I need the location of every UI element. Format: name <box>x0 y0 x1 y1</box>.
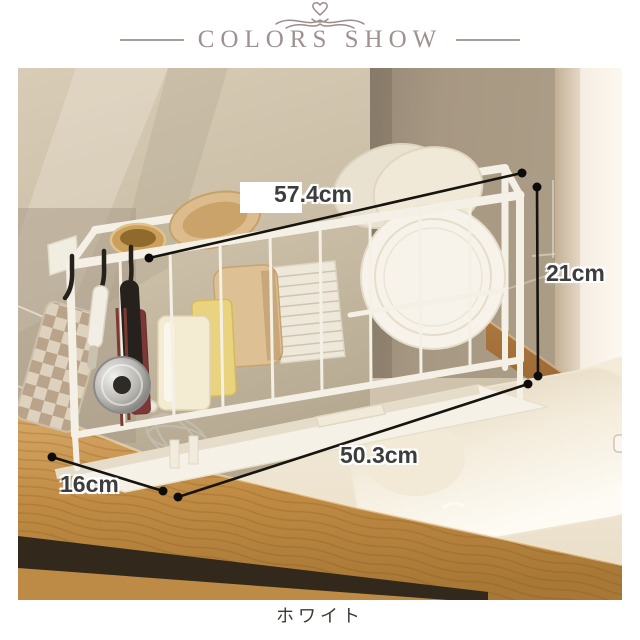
kitchen-scene-illustration <box>18 68 622 600</box>
sink-fitting <box>614 435 622 452</box>
dim-label-top-width: 57.4cm <box>274 181 352 208</box>
dim-line-right-height <box>537 187 538 376</box>
dim-label-left-depth: 16cm <box>60 471 119 498</box>
rack-foot <box>170 440 179 468</box>
title-row: COLORS SHOW <box>0 26 640 54</box>
header: COLORS SHOW <box>0 0 640 64</box>
product-photo: 57.4cm 21cm 50.3cm 16cm <box>18 68 622 600</box>
page: COLORS SHOW <box>0 0 640 640</box>
rack-foot <box>189 436 198 464</box>
dim-label-bottom-width: 50.3cm <box>340 442 418 469</box>
color-caption: ホワイト <box>0 602 640 628</box>
cream-cup <box>158 316 210 410</box>
steel-pan <box>94 357 150 413</box>
white-round-plate <box>361 205 505 349</box>
dim-label-right-height: 21cm <box>546 260 605 287</box>
page-title: COLORS SHOW <box>198 26 443 54</box>
title-rule-right <box>456 39 520 41</box>
title-rule-left <box>120 39 184 41</box>
